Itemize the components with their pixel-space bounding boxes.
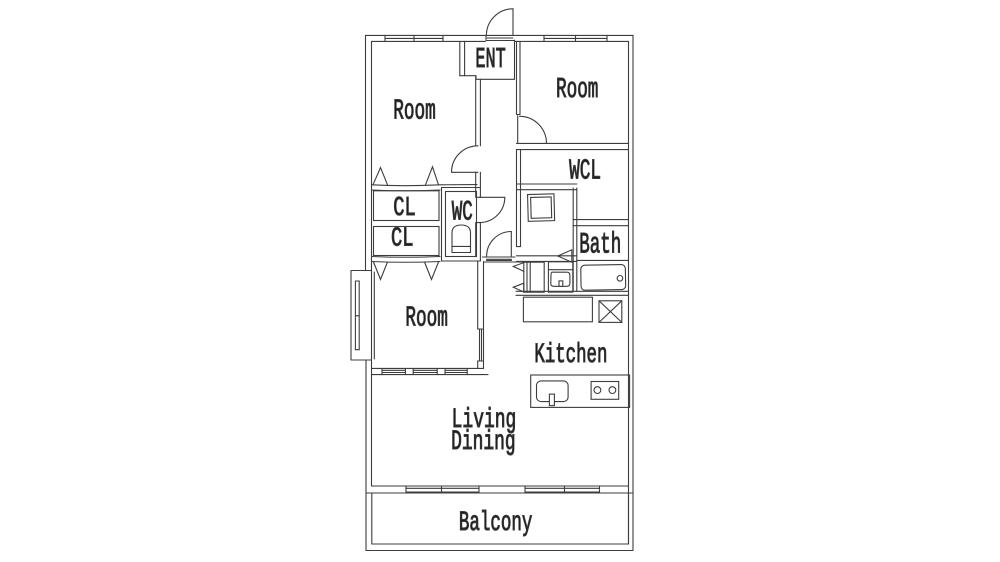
svg-text:CL: CL xyxy=(393,194,416,224)
svg-text:Dining: Dining xyxy=(451,427,516,458)
svg-text:Room: Room xyxy=(393,94,436,127)
svg-text:CL: CL xyxy=(391,224,414,254)
svg-text:WCL: WCL xyxy=(569,154,601,187)
svg-text:Room: Room xyxy=(556,73,599,106)
svg-text:ENT: ENT xyxy=(475,43,506,76)
svg-text:WC: WC xyxy=(452,198,473,229)
svg-text:Room: Room xyxy=(405,302,448,335)
svg-text:Bath: Bath xyxy=(579,228,621,262)
svg-text:Kitchen: Kitchen xyxy=(534,340,607,371)
svg-text:Balcony: Balcony xyxy=(459,508,533,539)
